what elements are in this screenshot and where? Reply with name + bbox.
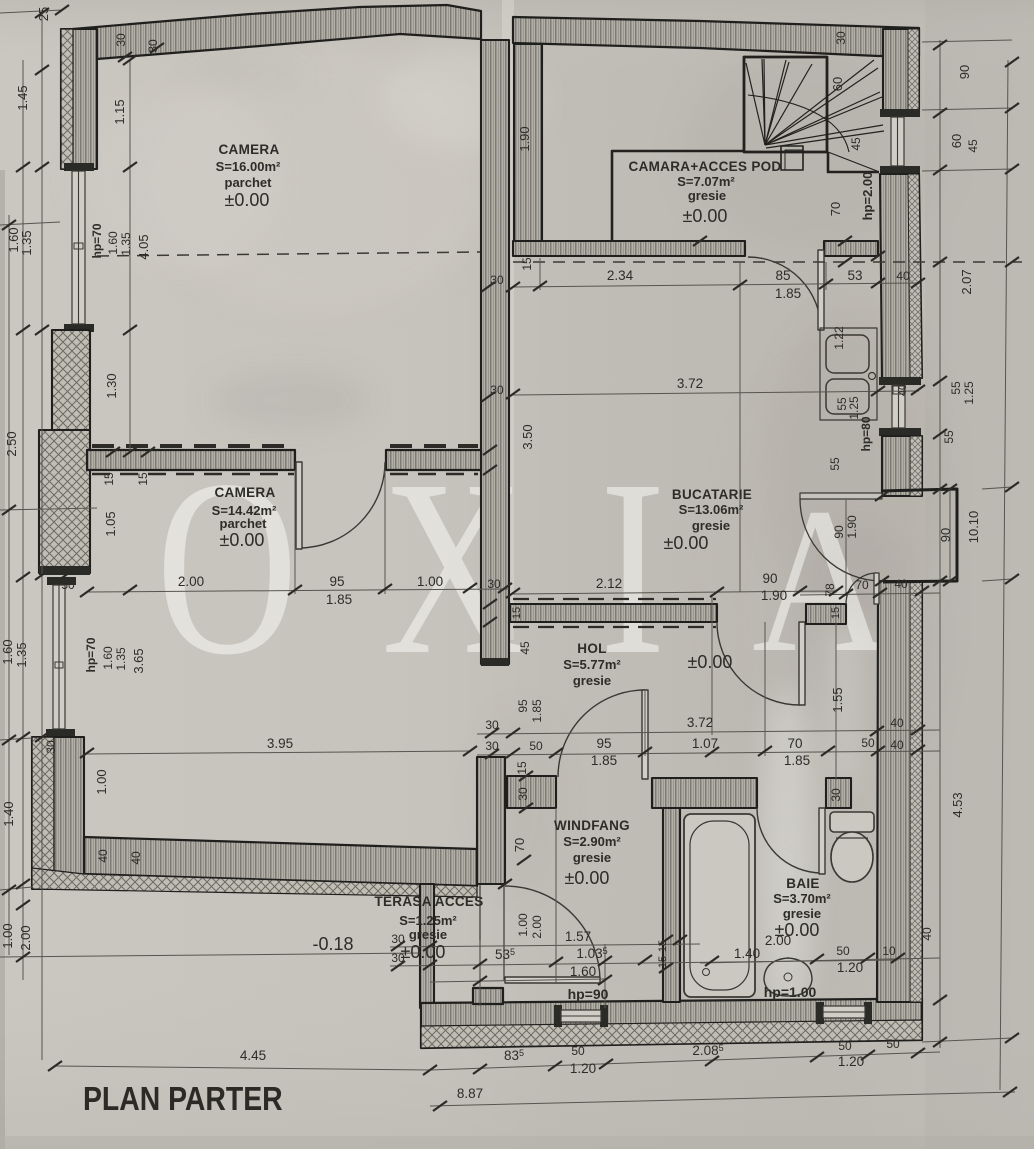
svg-text:1.20: 1.20 xyxy=(570,1061,596,1076)
svg-text:40: 40 xyxy=(897,384,909,396)
svg-text:53: 53 xyxy=(847,268,862,283)
svg-text:1.85: 1.85 xyxy=(784,753,810,768)
svg-text:15: 15 xyxy=(830,607,842,619)
svg-text:S=16.00m²: S=16.00m² xyxy=(216,159,281,174)
svg-text:90: 90 xyxy=(832,525,846,539)
svg-text:1.85: 1.85 xyxy=(591,753,617,768)
svg-text:70: 70 xyxy=(828,202,843,216)
svg-text:parchet: parchet xyxy=(225,175,273,190)
svg-text:1.45: 1.45 xyxy=(15,85,30,110)
svg-text:2.34: 2.34 xyxy=(607,268,634,283)
svg-text:1.35: 1.35 xyxy=(14,642,29,667)
svg-text:40: 40 xyxy=(890,738,904,752)
svg-text:70: 70 xyxy=(512,838,527,852)
svg-text:gresie: gresie xyxy=(688,188,726,203)
svg-text:S=7.07m²: S=7.07m² xyxy=(677,174,735,189)
svg-text:gresie: gresie xyxy=(573,850,611,865)
svg-text:1.00: 1.00 xyxy=(516,913,530,937)
svg-text:CAMERA: CAMERA xyxy=(218,142,279,157)
svg-text:2.00: 2.00 xyxy=(18,925,33,950)
svg-text:1.00: 1.00 xyxy=(417,574,443,589)
svg-text:1.85: 1.85 xyxy=(775,286,801,301)
svg-text:10.10: 10.10 xyxy=(966,511,981,544)
svg-text:1.00: 1.00 xyxy=(94,769,109,794)
svg-text:30: 30 xyxy=(485,739,499,753)
svg-text:1.30: 1.30 xyxy=(104,373,119,398)
svg-text:1.35: 1.35 xyxy=(119,232,133,256)
svg-text:1.07: 1.07 xyxy=(692,736,718,751)
svg-text:gresie: gresie xyxy=(692,518,730,533)
svg-text:3.95: 3.95 xyxy=(267,736,293,751)
svg-text:30: 30 xyxy=(834,31,848,45)
svg-text:30: 30 xyxy=(114,33,128,47)
svg-text:3.72: 3.72 xyxy=(677,376,703,391)
svg-text:1.90: 1.90 xyxy=(517,126,532,151)
svg-text:60: 60 xyxy=(830,77,845,91)
svg-text:50: 50 xyxy=(61,578,75,592)
svg-text:15: 15 xyxy=(657,956,669,968)
svg-text:40: 40 xyxy=(96,849,110,863)
svg-text:1.60: 1.60 xyxy=(101,646,115,670)
svg-text:2.00: 2.00 xyxy=(178,574,204,589)
svg-text:1.60: 1.60 xyxy=(106,231,120,255)
svg-text:45: 45 xyxy=(518,641,532,655)
svg-text:15: 15 xyxy=(136,472,150,486)
svg-text:40: 40 xyxy=(129,851,143,865)
svg-text:S=2.90m²: S=2.90m² xyxy=(563,834,621,849)
svg-text:30: 30 xyxy=(146,39,160,53)
svg-text:25: 25 xyxy=(36,7,51,21)
svg-text:S=3.70m²: S=3.70m² xyxy=(773,891,831,906)
svg-text:3.65: 3.65 xyxy=(131,648,146,673)
svg-text:hp=2.00: hp=2.00 xyxy=(860,172,875,221)
svg-text:15: 15 xyxy=(511,607,523,619)
svg-text:S=13.06m²: S=13.06m² xyxy=(679,502,744,517)
svg-text:30: 30 xyxy=(391,951,405,965)
svg-text:30: 30 xyxy=(44,740,58,754)
svg-text:BAIE: BAIE xyxy=(786,876,819,891)
svg-text:4.45: 4.45 xyxy=(240,1048,266,1063)
svg-text:10: 10 xyxy=(882,944,896,958)
svg-text:CAMARA+ACCES POD: CAMARA+ACCES POD xyxy=(629,159,782,174)
svg-text:hp=70: hp=70 xyxy=(84,637,98,672)
svg-text:15: 15 xyxy=(515,761,529,775)
svg-text:BUCATARIE: BUCATARIE xyxy=(672,487,752,502)
svg-text:40: 40 xyxy=(920,927,934,941)
svg-text:15: 15 xyxy=(520,257,534,271)
svg-text:hp=1.00: hp=1.00 xyxy=(764,984,817,1000)
svg-text:gresie: gresie xyxy=(409,927,447,942)
svg-text:CAMERA: CAMERA xyxy=(214,485,275,500)
svg-text:90: 90 xyxy=(957,65,972,79)
svg-text:50: 50 xyxy=(836,944,850,958)
svg-text:PLAN PARTER: PLAN PARTER xyxy=(83,1080,283,1118)
svg-text:TERASA ACCES: TERASA ACCES xyxy=(374,894,483,909)
svg-text:±0.00: ±0.00 xyxy=(688,652,733,672)
svg-text:30: 30 xyxy=(490,273,504,287)
svg-text:1.22: 1.22 xyxy=(832,326,846,350)
svg-text:1.25: 1.25 xyxy=(847,396,861,420)
svg-text:2.12: 2.12 xyxy=(596,576,622,591)
svg-text:3.72: 3.72 xyxy=(687,715,713,730)
svg-text:±0.00: ±0.00 xyxy=(565,868,610,888)
svg-text:1.20: 1.20 xyxy=(837,960,863,975)
svg-text:3.50: 3.50 xyxy=(520,424,535,449)
svg-text:95: 95 xyxy=(329,574,344,589)
svg-text:40: 40 xyxy=(894,577,908,591)
svg-text:45: 45 xyxy=(849,137,863,151)
svg-text:1.20: 1.20 xyxy=(838,1054,864,1069)
svg-text:70: 70 xyxy=(855,578,869,592)
svg-text:2.50: 2.50 xyxy=(4,431,19,456)
svg-text:4.53: 4.53 xyxy=(950,792,965,817)
svg-text:hp=80: hp=80 xyxy=(859,416,873,451)
svg-text:1.05: 1.05 xyxy=(103,511,118,536)
svg-text:±0.00: ±0.00 xyxy=(664,533,709,553)
svg-text:1.60: 1.60 xyxy=(570,964,596,979)
svg-text:S=1.25m²: S=1.25m² xyxy=(399,913,457,928)
svg-text:HOL: HOL xyxy=(577,641,606,656)
svg-text:30: 30 xyxy=(485,718,499,732)
svg-text:1.85: 1.85 xyxy=(326,592,352,607)
svg-text:1.35: 1.35 xyxy=(114,647,128,671)
svg-text:1.90: 1.90 xyxy=(761,588,787,603)
svg-text:parchet: parchet xyxy=(220,516,268,531)
svg-text:±0.00: ±0.00 xyxy=(220,530,265,550)
svg-text:2.00: 2.00 xyxy=(530,915,544,939)
svg-text:S=5.77m²: S=5.77m² xyxy=(563,657,621,672)
svg-text:30: 30 xyxy=(490,383,504,397)
svg-text:40: 40 xyxy=(890,716,904,730)
svg-text:gresie: gresie xyxy=(573,673,611,688)
svg-text:60: 60 xyxy=(949,134,964,148)
svg-text:30: 30 xyxy=(829,788,843,802)
svg-text:hp=90: hp=90 xyxy=(568,986,609,1002)
svg-text:1.55: 1.55 xyxy=(830,687,845,712)
svg-text:1.25: 1.25 xyxy=(962,381,976,405)
svg-text:1.90: 1.90 xyxy=(845,515,859,539)
svg-text:±0.00: ±0.00 xyxy=(683,206,728,226)
svg-text:1.00: 1.00 xyxy=(0,923,15,948)
svg-text:50: 50 xyxy=(861,736,875,750)
svg-text:1.40: 1.40 xyxy=(1,801,16,826)
svg-text:45: 45 xyxy=(966,139,980,153)
svg-text:55: 55 xyxy=(828,457,842,471)
svg-text:50: 50 xyxy=(886,1037,900,1051)
svg-text:-0.18: -0.18 xyxy=(312,934,353,954)
svg-text:1.35: 1.35 xyxy=(19,230,34,255)
svg-text:hp=70: hp=70 xyxy=(90,223,104,258)
svg-text:90: 90 xyxy=(938,528,953,542)
svg-text:90: 90 xyxy=(762,571,777,586)
svg-text:95: 95 xyxy=(596,736,611,751)
svg-text:2.07: 2.07 xyxy=(959,269,974,294)
svg-text:95: 95 xyxy=(516,699,530,713)
svg-text:±0.00: ±0.00 xyxy=(401,942,446,962)
svg-text:4.05: 4.05 xyxy=(136,234,151,259)
svg-text:2.00: 2.00 xyxy=(765,933,791,948)
svg-text:50: 50 xyxy=(571,1044,585,1058)
svg-text:1.57: 1.57 xyxy=(565,929,591,944)
svg-text:1.60: 1.60 xyxy=(0,639,15,664)
svg-text:gresie: gresie xyxy=(783,906,821,921)
svg-text:15: 15 xyxy=(102,472,116,486)
svg-text:78: 78 xyxy=(823,583,837,597)
svg-text:1.40: 1.40 xyxy=(734,946,760,961)
svg-text:55: 55 xyxy=(942,430,956,444)
svg-text:15: 15 xyxy=(657,940,669,952)
svg-text:30: 30 xyxy=(391,932,405,946)
svg-text:1.15: 1.15 xyxy=(112,99,127,124)
svg-text:50: 50 xyxy=(529,739,543,753)
svg-text:±0.00: ±0.00 xyxy=(225,190,270,210)
svg-text:85: 85 xyxy=(775,268,790,283)
svg-text:8.87: 8.87 xyxy=(457,1086,483,1101)
svg-text:30: 30 xyxy=(516,787,530,801)
svg-text:70: 70 xyxy=(787,736,802,751)
svg-text:50: 50 xyxy=(838,1039,852,1053)
svg-text:40: 40 xyxy=(896,269,910,283)
svg-text:1.85: 1.85 xyxy=(530,699,544,723)
svg-text:55: 55 xyxy=(949,381,963,395)
svg-text:30: 30 xyxy=(487,577,501,591)
svg-text:WINDFANG: WINDFANG xyxy=(554,818,630,833)
